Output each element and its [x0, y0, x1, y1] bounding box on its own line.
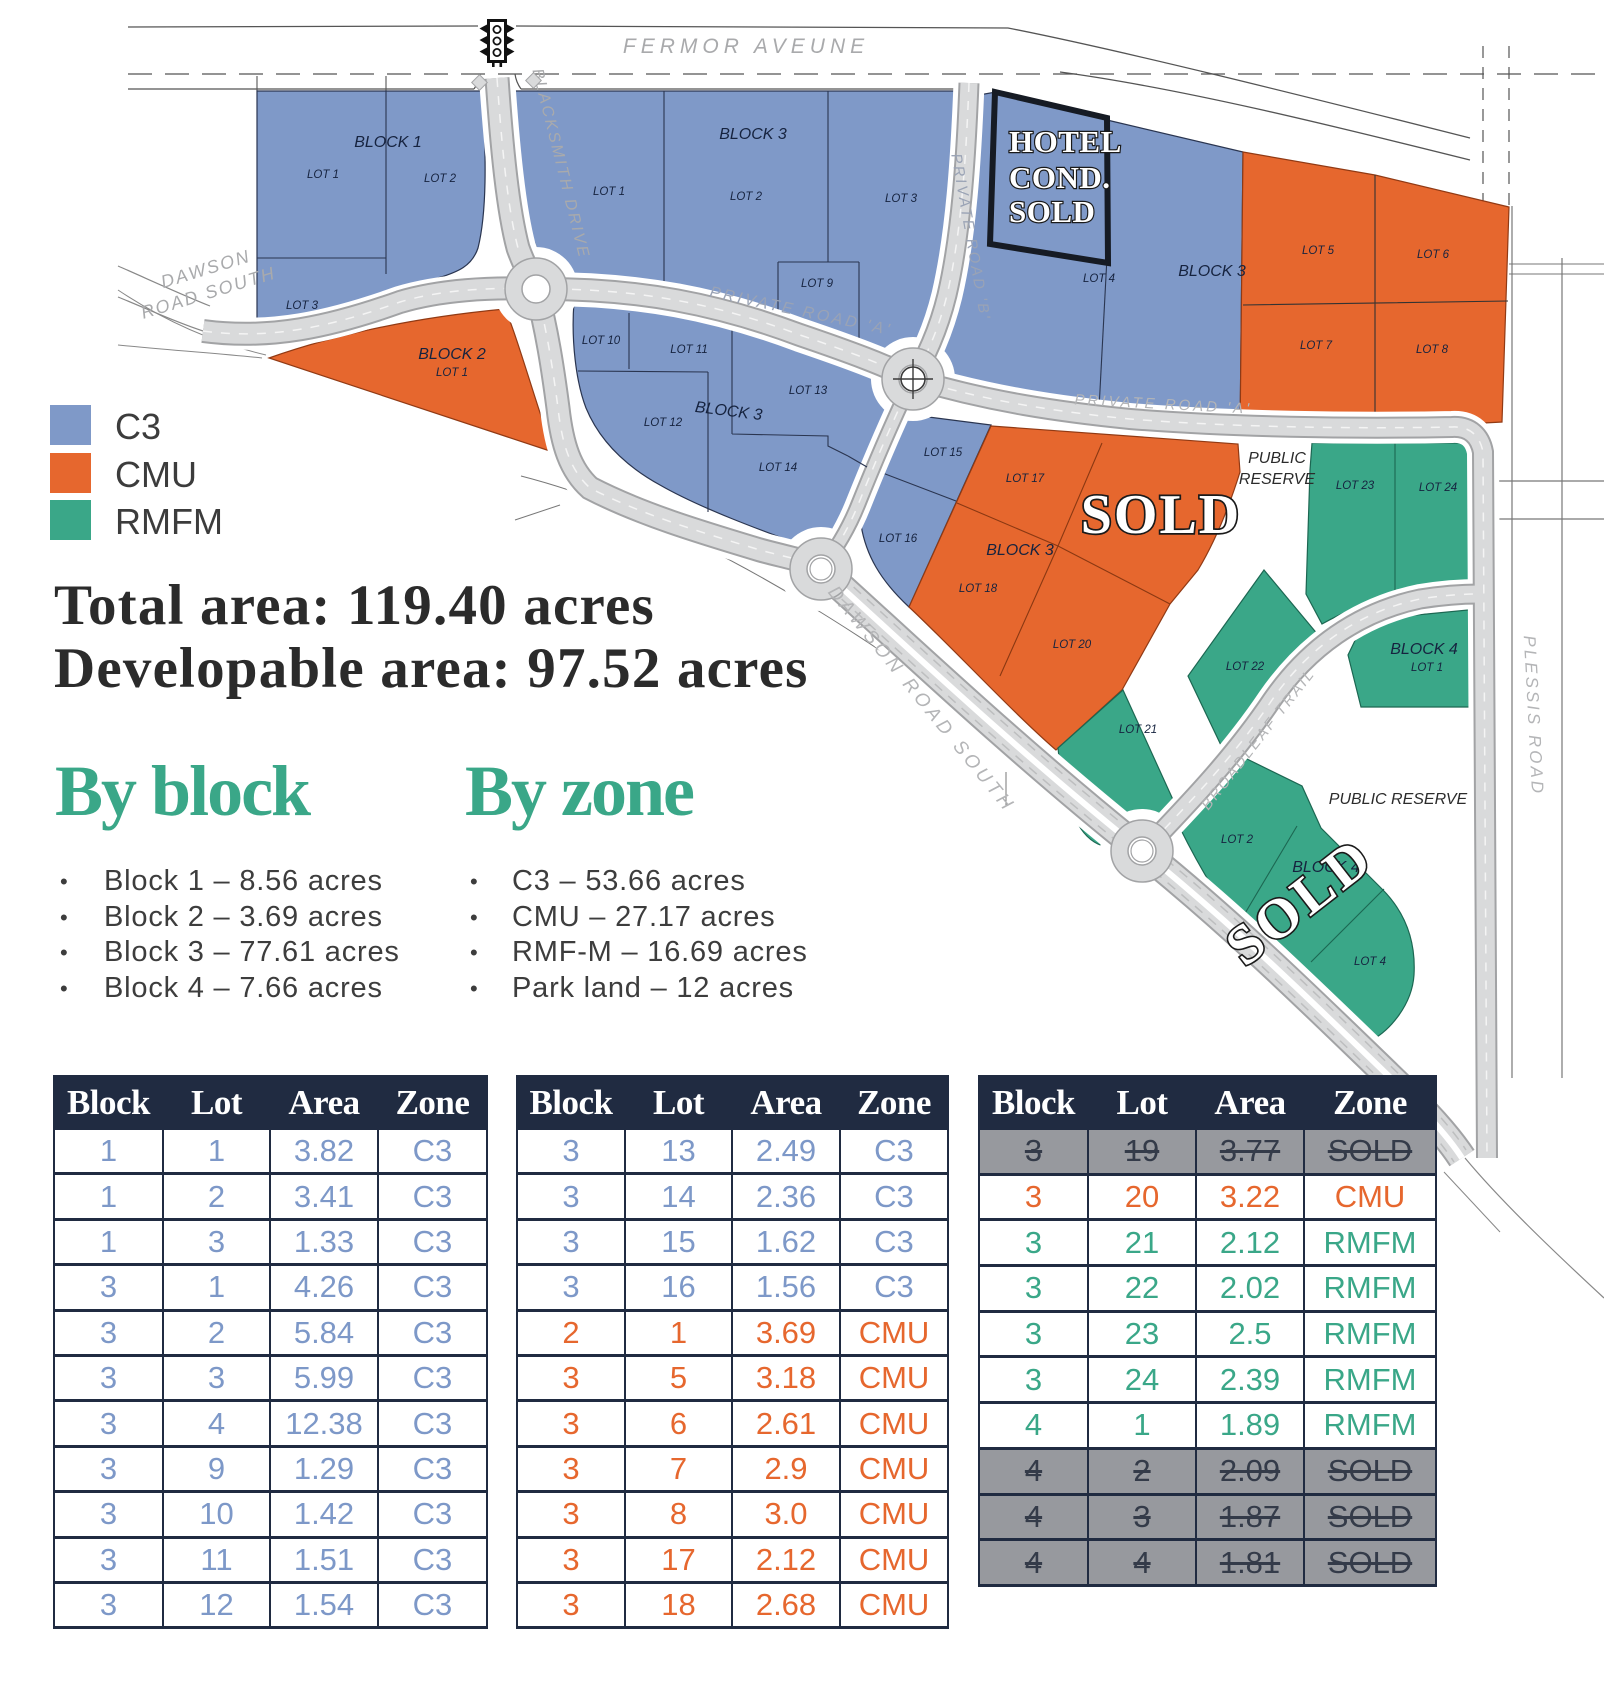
svg-text:LOT 1: LOT 1 — [307, 169, 339, 181]
svg-text:LOT 3: LOT 3 — [885, 193, 918, 205]
svg-text:HOTEL: HOTEL — [1009, 124, 1122, 159]
svg-text:COND.: COND. — [1009, 160, 1111, 195]
svg-text:SOLD: SOLD — [1009, 194, 1095, 229]
svg-text:LOT 17: LOT 17 — [1006, 473, 1045, 485]
svg-text:LOT 15: LOT 15 — [924, 447, 963, 459]
svg-text:BLOCK 3: BLOCK 3 — [719, 126, 787, 143]
svg-text:LOT 1: LOT 1 — [436, 367, 468, 379]
svg-text:LOT 4: LOT 4 — [1354, 956, 1386, 968]
svg-text:LOT 1: LOT 1 — [593, 186, 625, 198]
svg-text:BLOCK 3: BLOCK 3 — [1178, 263, 1246, 280]
svg-text:LOT 21: LOT 21 — [1119, 724, 1157, 736]
svg-text:RESERVE: RESERVE — [1239, 471, 1316, 488]
svg-text:LOT 11: LOT 11 — [670, 344, 708, 356]
svg-text:LOT 9: LOT 9 — [801, 278, 834, 290]
svg-text:LOT 2: LOT 2 — [1221, 834, 1254, 846]
svg-text:LOT 16: LOT 16 — [879, 533, 918, 545]
svg-text:LOT 4: LOT 4 — [1083, 273, 1115, 285]
svg-text:BLOCK 3: BLOCK 3 — [986, 542, 1054, 559]
svg-text:LOT 10: LOT 10 — [582, 335, 621, 347]
svg-text:LOT 24: LOT 24 — [1419, 482, 1457, 494]
svg-text:PUBLIC RESERVE: PUBLIC RESERVE — [1329, 791, 1468, 808]
svg-text:LOT 2: LOT 2 — [730, 191, 763, 203]
svg-text:LOT 1: LOT 1 — [1411, 662, 1443, 674]
svg-text:BLOCK 4: BLOCK 4 — [1390, 641, 1458, 658]
svg-text:FERMOR AVEUNE: FERMOR AVEUNE — [623, 35, 869, 58]
svg-text:LOT 13: LOT 13 — [789, 385, 828, 397]
svg-text:LOT 14: LOT 14 — [759, 462, 797, 474]
svg-text:LOT 23: LOT 23 — [1336, 480, 1375, 492]
svg-text:LOT 18: LOT 18 — [959, 583, 998, 595]
svg-text:LOT 22: LOT 22 — [1226, 661, 1265, 673]
svg-text:BLOCK 1: BLOCK 1 — [354, 134, 422, 151]
svg-text:SOLD: SOLD — [1081, 484, 1242, 546]
svg-text:LOT 7: LOT 7 — [1300, 340, 1333, 352]
svg-text:LOT 5: LOT 5 — [1302, 245, 1335, 257]
svg-text:LOT 2: LOT 2 — [424, 173, 457, 185]
svg-text:LOT 8: LOT 8 — [1416, 344, 1449, 356]
svg-text:BLOCK 2: BLOCK 2 — [418, 346, 486, 363]
svg-text:LOT 3: LOT 3 — [286, 300, 319, 312]
svg-text:LOT 20: LOT 20 — [1053, 639, 1092, 651]
svg-text:PUBLIC: PUBLIC — [1248, 450, 1306, 467]
svg-text:LOT 6: LOT 6 — [1417, 249, 1450, 261]
svg-text:PLESSIS ROAD: PLESSIS ROAD — [1520, 635, 1547, 796]
svg-text:LOT 12: LOT 12 — [644, 417, 683, 429]
